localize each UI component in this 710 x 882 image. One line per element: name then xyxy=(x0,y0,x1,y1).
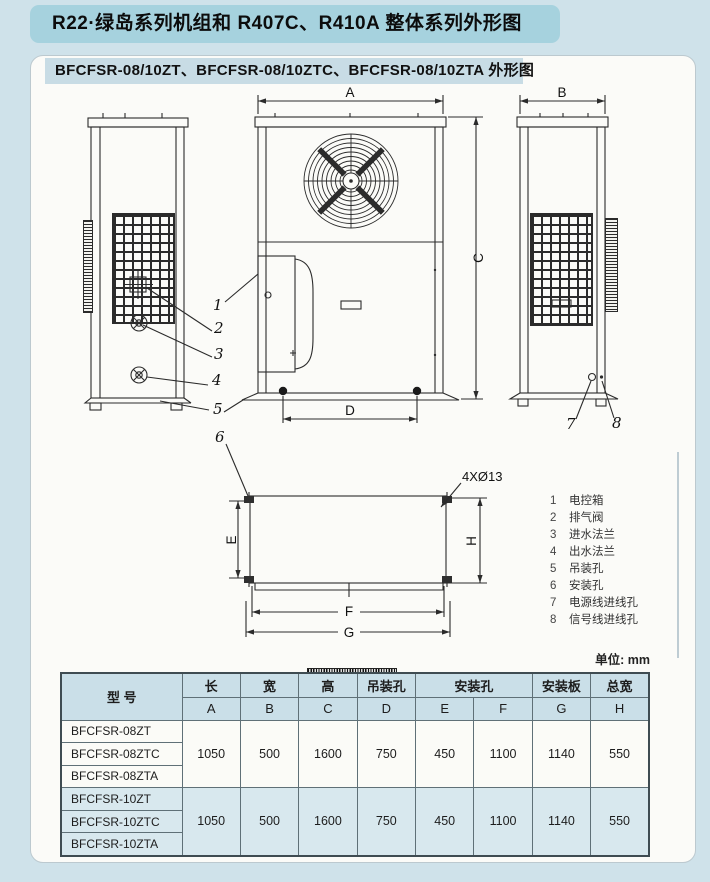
dim-label-c: C xyxy=(471,253,486,263)
legend-no: 3 xyxy=(550,527,569,544)
dimension-spec-table: 型 号 长 宽 高 吊装孔 安装孔 安装板 总宽 A B C D E F G H xyxy=(60,672,650,857)
legend-item: 2排气阀 xyxy=(550,510,638,527)
legend-no: 5 xyxy=(550,561,569,578)
callout-3: 3 xyxy=(214,345,224,363)
col-header-height: 高 xyxy=(299,673,357,697)
legend-no: 8 xyxy=(550,612,569,629)
col-header-model: 型 号 xyxy=(61,673,182,720)
legend-no: 1 xyxy=(550,493,569,510)
legend-item: 8信号线进线孔 xyxy=(550,612,638,629)
table-header: 型 号 长 宽 高 吊装孔 安装孔 安装板 总宽 A B C D E F G H xyxy=(61,673,649,720)
col-letter: A xyxy=(182,697,240,720)
dim-label-e: E xyxy=(224,535,239,544)
model-cell: BFCFSR-10ZTA xyxy=(61,833,182,856)
value-cell: 1050 xyxy=(182,788,240,856)
value-cell: 500 xyxy=(240,788,298,856)
model-subtitle: BFCFSR-08/10ZT、BFCFSR-08/10ZTC、BFCFSR-08… xyxy=(45,58,523,84)
col-letter: F xyxy=(474,697,532,720)
value-cell: 1050 xyxy=(182,720,240,788)
dim-label-a: A xyxy=(345,85,354,100)
value-cell: 750 xyxy=(357,788,415,856)
model-cell: BFCFSR-08ZTC xyxy=(61,743,182,766)
dim-label-b: B xyxy=(557,85,566,100)
col-header-width: 宽 xyxy=(240,673,298,697)
legend-label: 信号线进线孔 xyxy=(569,614,638,626)
legend-item: 3进水法兰 xyxy=(550,527,638,544)
legend-item: 5吊装孔 xyxy=(550,561,638,578)
grille-left-view xyxy=(112,213,175,324)
value-cell: 450 xyxy=(416,720,474,788)
value-cell: 450 xyxy=(416,788,474,856)
legend-label: 电源线进线孔 xyxy=(569,597,638,609)
scanned-catalog-page: R22·绿岛系列机组和 R407C、R410A 整体系列外形图 BFCFSR-0… xyxy=(0,0,710,882)
legend-no: 4 xyxy=(550,544,569,561)
callout-5: 5 xyxy=(213,400,223,418)
value-cell: 1140 xyxy=(532,720,590,788)
legend-label: 吊装孔 xyxy=(569,563,604,575)
legend-no: 6 xyxy=(550,578,569,595)
dim-label-g: G xyxy=(344,625,355,640)
model-cell: BFCFSR-08ZT xyxy=(61,720,182,743)
dim-label-f: F xyxy=(345,604,353,619)
col-header-mounting-hole: 安装孔 xyxy=(416,673,533,697)
dim-label-d: D xyxy=(345,403,355,418)
grille-right-view xyxy=(530,213,593,326)
table-row: BFCFSR-10ZT 1050 500 1600 750 450 1100 1… xyxy=(61,788,649,811)
legend-label: 排气阀 xyxy=(569,512,604,524)
callout-6: 6 xyxy=(215,428,225,446)
page-title: R22·绿岛系列机组和 R407C、R410A 整体系列外形图 xyxy=(30,5,560,43)
legend-label: 进水法兰 xyxy=(569,529,615,541)
dimension-lines xyxy=(229,95,605,637)
mounting-tabs xyxy=(244,496,452,583)
page-crease-line xyxy=(677,452,679,658)
legend-item: 7电源线进线孔 xyxy=(550,595,638,612)
dim-label-h: H xyxy=(464,536,479,546)
value-cell: 750 xyxy=(357,720,415,788)
legend-label: 电控箱 xyxy=(569,495,604,507)
col-letter: E xyxy=(416,697,474,720)
model-group-08: BFCFSR-08ZT 1050 500 1600 750 450 1100 1… xyxy=(61,720,649,788)
col-letter: B xyxy=(240,697,298,720)
parts-legend: 1电控箱 2排气阀 3进水法兰 4出水法兰 5吊装孔 6安装孔 7电源线进线孔 … xyxy=(550,493,638,629)
value-cell: 1600 xyxy=(299,720,357,788)
col-header-mounting-plate: 安装板 xyxy=(532,673,590,697)
hole-spec-note: 4XØ13 xyxy=(462,469,502,484)
unit-note: 单位: mm xyxy=(595,649,650,668)
front-view xyxy=(242,113,459,400)
model-cell: BFCFSR-08ZTA xyxy=(61,765,182,788)
model-group-10: BFCFSR-10ZT 1050 500 1600 750 450 1100 1… xyxy=(61,788,649,856)
col-letter: G xyxy=(532,697,590,720)
legend-item: 4出水法兰 xyxy=(550,544,638,561)
col-header-total-width: 总宽 xyxy=(591,673,649,697)
callout-8: 8 xyxy=(612,414,622,432)
model-cell: BFCFSR-10ZT xyxy=(61,788,182,811)
plan-view xyxy=(244,492,452,597)
value-cell: 500 xyxy=(240,720,298,788)
model-cell: BFCFSR-10ZTC xyxy=(61,810,182,833)
callout-7: 7 xyxy=(566,415,576,433)
legend-label: 出水法兰 xyxy=(569,546,615,558)
col-header-lifting-hole: 吊装孔 xyxy=(357,673,415,697)
legend-no: 2 xyxy=(550,510,569,527)
value-cell: 1140 xyxy=(532,788,590,856)
col-letter: D xyxy=(357,697,415,720)
col-header-length: 长 xyxy=(182,673,240,697)
callout-2: 2 xyxy=(213,319,224,337)
value-cell: 550 xyxy=(591,788,649,856)
fan-icon xyxy=(304,134,398,228)
callout-1: 1 xyxy=(213,296,223,314)
callout-4: 4 xyxy=(211,371,222,389)
coil-guard-left xyxy=(83,220,93,313)
value-cell: 1600 xyxy=(299,788,357,856)
value-cell: 550 xyxy=(591,720,649,788)
col-letter: C xyxy=(299,697,357,720)
table-row: BFCFSR-08ZT 1050 500 1600 750 450 1100 1… xyxy=(61,720,649,743)
col-letter: H xyxy=(591,697,649,720)
coil-guard-right xyxy=(605,218,618,312)
legend-item: 1电控箱 xyxy=(550,493,638,510)
legend-no: 7 xyxy=(550,595,569,612)
value-cell: 1100 xyxy=(474,788,532,856)
legend-item: 6安装孔 xyxy=(550,578,638,595)
legend-label: 安装孔 xyxy=(569,580,604,592)
value-cell: 1100 xyxy=(474,720,532,788)
